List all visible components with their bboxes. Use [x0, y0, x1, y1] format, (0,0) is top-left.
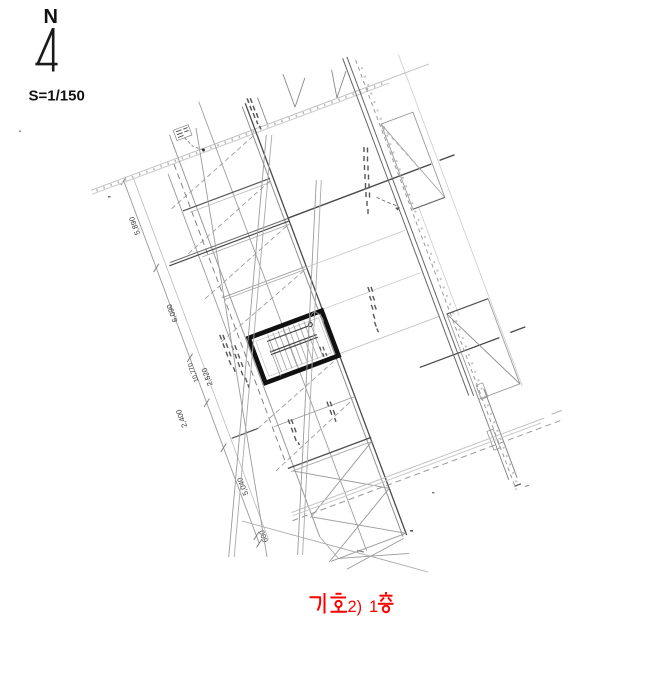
svg-text:S=1/150: S=1/150 — [29, 88, 85, 105]
svg-text:N: N — [44, 6, 58, 28]
svg-text:2): 2) — [348, 598, 363, 616]
svg-text:1: 1 — [369, 598, 378, 616]
